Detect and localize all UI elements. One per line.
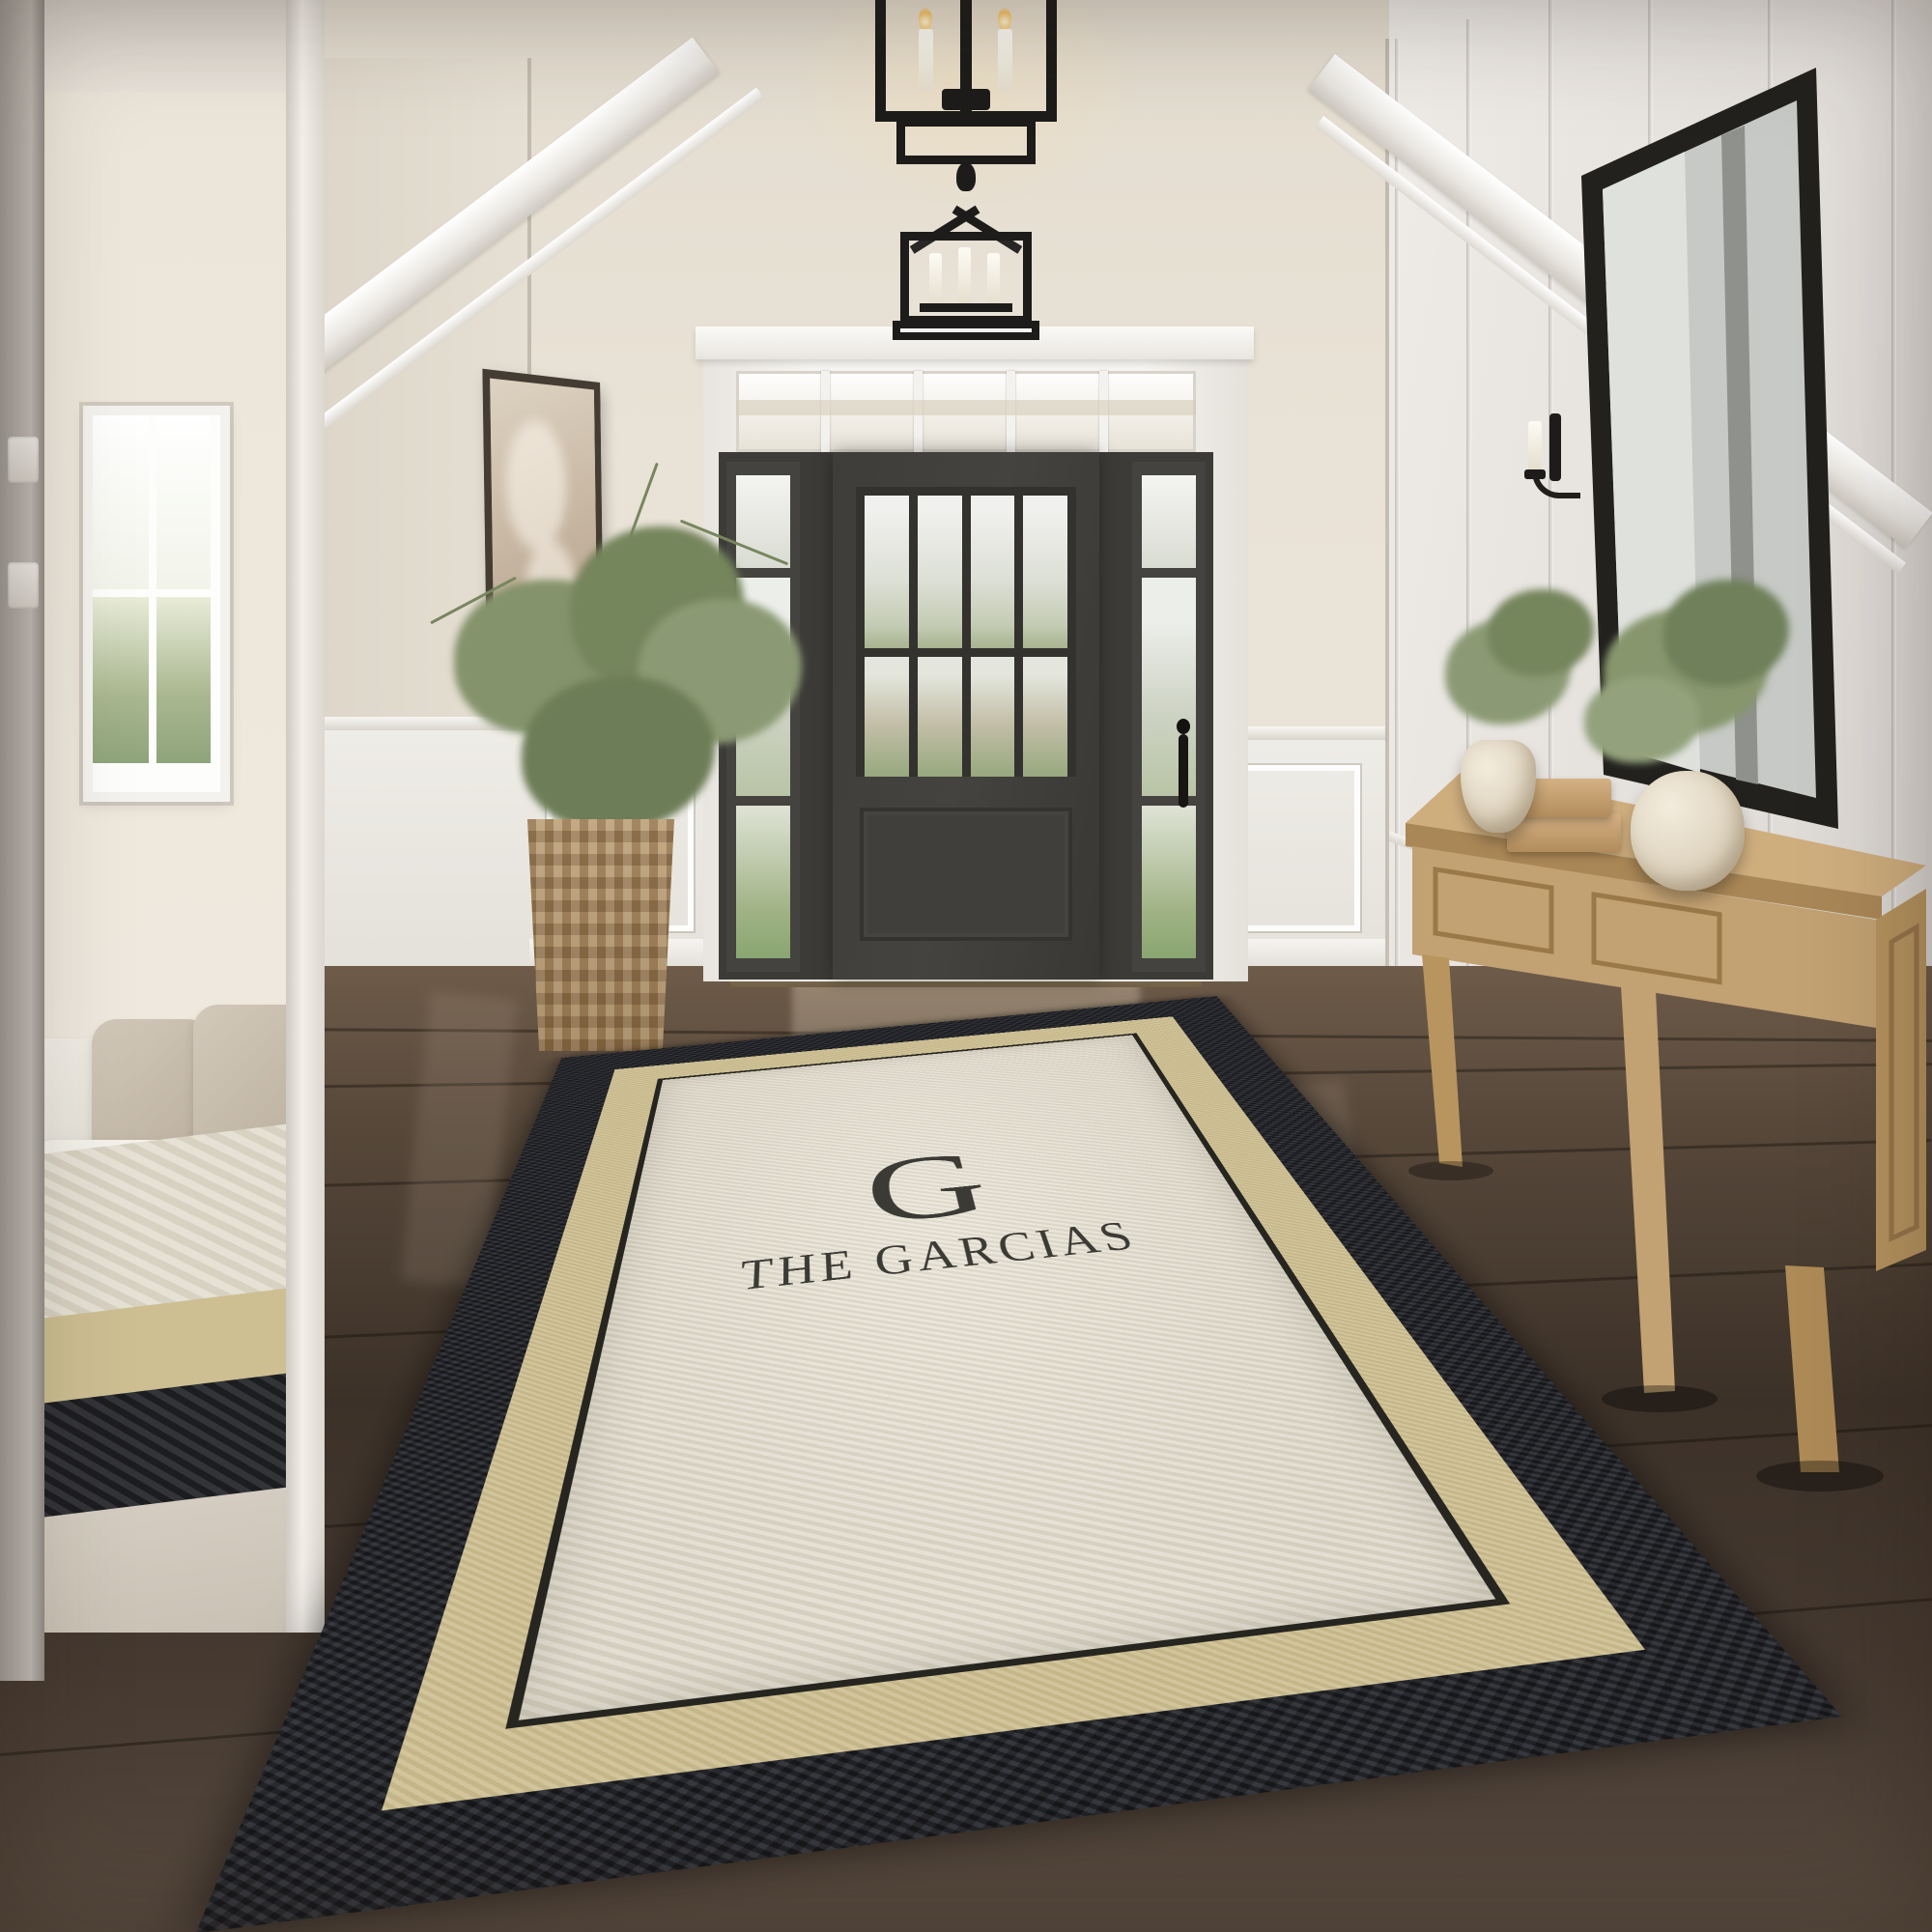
entryway-scene: G THE GARCIAS	[0, 0, 1932, 1932]
personalized-rug: G THE GARCIAS	[195, 996, 1841, 1932]
rug-monogram: G	[863, 1147, 995, 1231]
rug-perspective-wrap: G THE GARCIAS	[0, 0, 1932, 1932]
